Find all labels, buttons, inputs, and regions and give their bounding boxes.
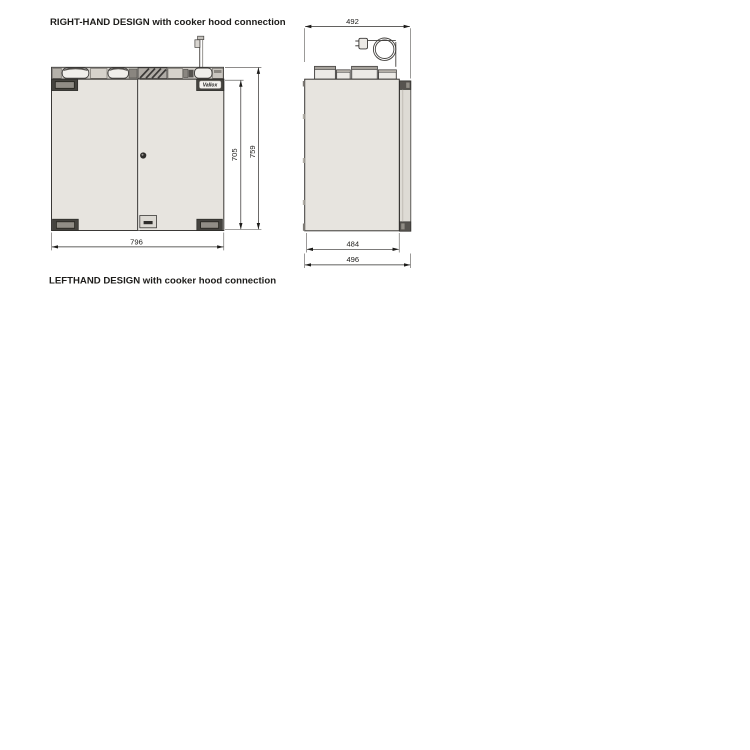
svg-text:LEFTHAND DESIGN with cooker ho: LEFTHAND DESIGN with cooker hood connect… <box>49 276 276 287</box>
svg-text:RIGHT-HAND DESIGN with cooker: RIGHT-HAND DESIGN with cooker hood conne… <box>50 17 286 28</box>
svg-text:796: 796 <box>130 237 143 246</box>
svg-text:759: 759 <box>248 145 257 158</box>
svg-text:492: 492 <box>346 17 359 26</box>
svg-text:484: 484 <box>346 240 359 249</box>
svg-text:705: 705 <box>230 148 239 161</box>
svg-text:496: 496 <box>346 255 359 264</box>
svg-text:Vallox: Vallox <box>203 83 218 89</box>
